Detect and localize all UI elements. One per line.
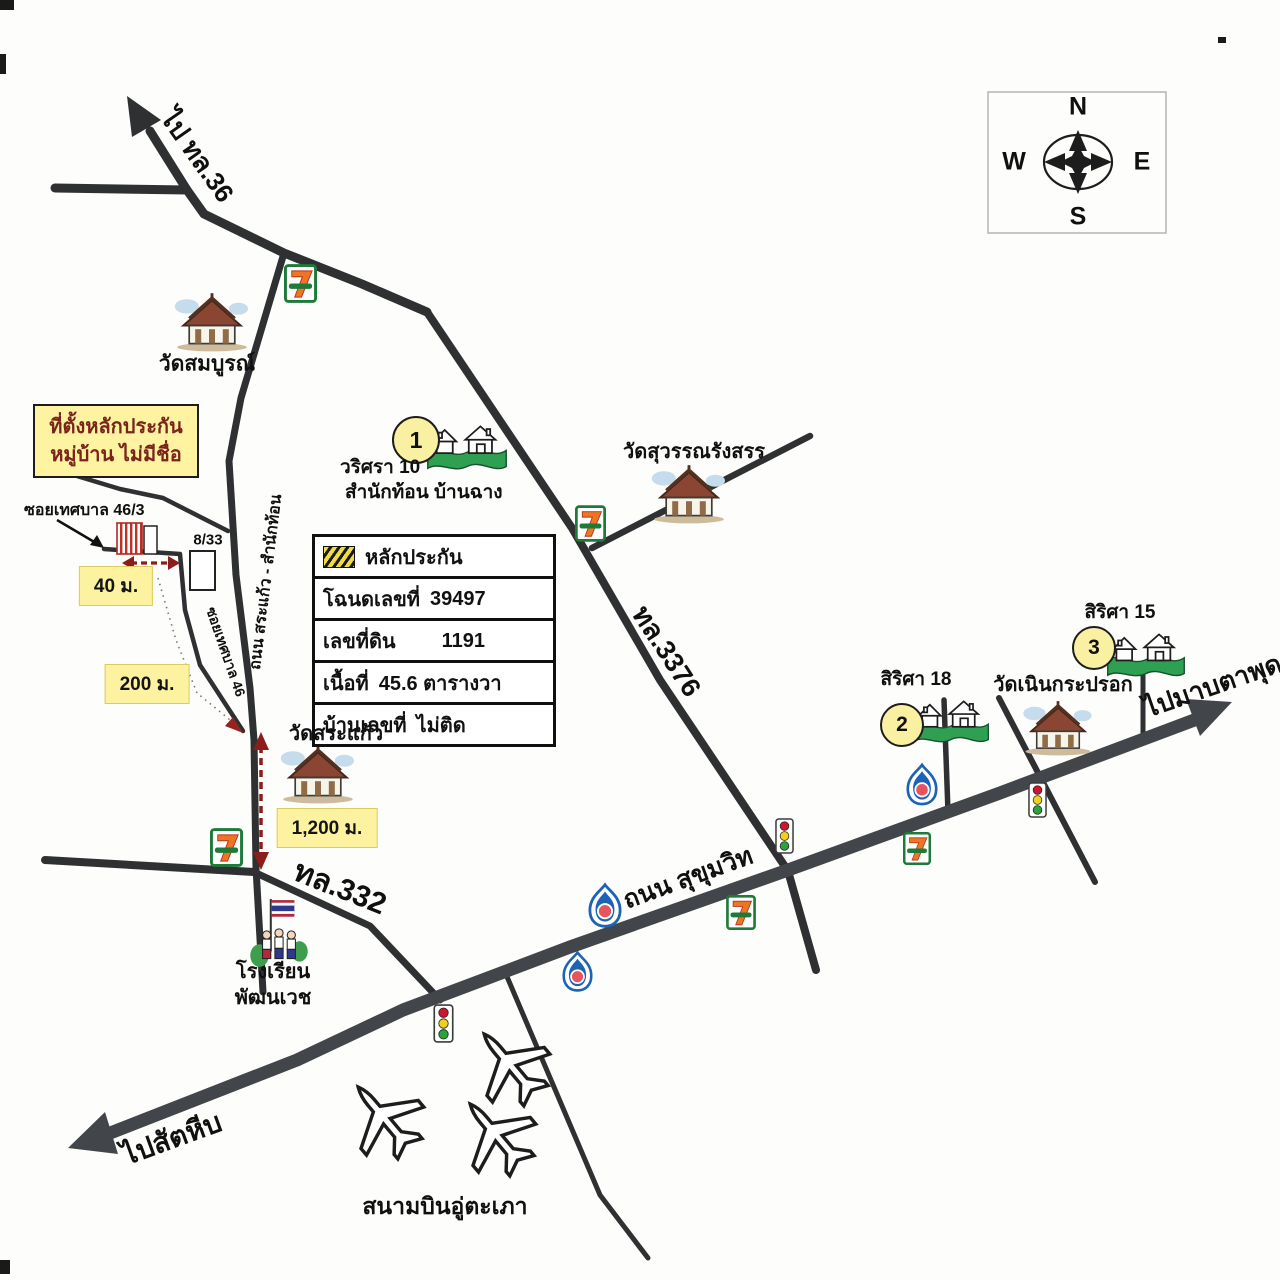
road-sukhumvit [100,716,1205,1137]
seven-eleven-icon [285,266,315,302]
marker-number: 3 [1088,636,1100,660]
scanned-location-map: ไป ทล.36 N W E S วัดสมบูรณ์ ที่ตั้งหลักป… [0,0,1280,1280]
info-label: เนื้อที่ [323,667,369,699]
house-8-33-parcel [190,551,215,590]
info-row-deed: โฉนดเลขที่ 39497 [315,579,553,621]
adjacent-parcel [144,526,157,554]
seven-eleven-icon [727,896,754,928]
ptt-gas-station-icon [590,885,620,927]
sirisa-18-label: สิริศา 18 [881,664,952,694]
house-no-label: 8/33 [193,532,222,549]
wat-noen-kraprok-label: วัดเนินกระปรอก [993,668,1133,700]
arrowhead-to-sattahip [68,1112,118,1154]
housing-estate-icon [914,701,989,741]
info-value: 1191 [442,630,485,653]
samnak-thon-ban-chang-label: สำนักท้อน บ้านฉาง [345,477,503,507]
wat-somboon-label: วัดสมบูรณ์ [159,348,255,381]
road-top-left-horizontal [55,188,187,190]
collateral-title-box: ที่ตั้งหลักประกัน หมู่บ้าน ไม่มีชื่อ [33,404,199,478]
seven-eleven-icon [576,507,604,541]
school-label-line1: โรงเรียน [236,959,310,985]
marker-number: 2 [896,713,908,737]
housing-estate-icon [428,426,506,468]
road-sirisa-18-spur [944,700,948,812]
soi-46-3-pointer [57,520,104,548]
traffic-light-icon [1029,783,1046,817]
info-row-parcel: เลขที่ดิน 1191 [315,621,553,663]
wat-sa-kaew-label: วัดสระแก้ว [289,717,383,749]
distance-box-200m: 200 ม. [105,664,190,704]
compass-east-label: E [1134,148,1151,177]
info-value: 45.6 ตารางวา [379,667,502,699]
seven-eleven-icon [211,830,241,866]
school-label-line2: พัฒนเวช [235,985,312,1011]
soi-46-3-label: ซอยเทศบาล 46/3 [24,498,145,523]
wat-suwanrangsan-label: วัดสุวรรณรังสรร [623,435,765,467]
traffic-light-icon [434,1005,452,1042]
distance-box-40m: 40 ม. [79,566,153,606]
info-title-row: หลักประกัน [315,537,553,579]
collateral-title-line2: หมู่บ้าน ไม่มีชื่อ [37,441,195,469]
compass-north-label: N [1069,93,1087,122]
collateral-parcel-hatched [117,523,142,554]
info-title: หลักประกัน [365,541,463,573]
ptt-gas-station-icon [908,765,936,804]
numbered-marker-2: 2 [880,703,924,747]
ptt-gas-station-icon [564,953,592,991]
temple-icon [175,293,248,351]
info-label: โฉนดเลขที่ [323,583,420,615]
temple-icon [1023,701,1091,755]
compass-west-label: W [1002,148,1026,177]
collateral-info-box: หลักประกัน โฉนดเลขที่ 39497 เลขที่ดิน 11… [312,534,556,747]
compass-south-label: S [1070,203,1087,232]
seven-eleven-icon [904,833,930,863]
traffic-light-icon [776,819,793,853]
info-label: เลขที่ดิน [323,625,396,657]
temple-icon [281,745,354,803]
airport-label: สนามบินอู่ตะเภา [362,1189,527,1225]
collateral-title-line1: ที่ตั้งหลักประกัน [37,413,195,441]
info-value: ไม่ติด [417,709,466,741]
info-value: 39497 [430,588,486,611]
marker-number: 1 [410,427,423,454]
distance-box-1200m: 1,200 ม. [277,808,378,848]
hatch-swatch-icon [323,546,355,568]
numbered-marker-3: 3 [1072,626,1116,670]
info-row-area: เนื้อที่ 45.6 ตารางวา [315,663,553,705]
sirisa-15-label: สิริศา 15 [1085,597,1156,627]
airplane-icon [330,1063,439,1173]
